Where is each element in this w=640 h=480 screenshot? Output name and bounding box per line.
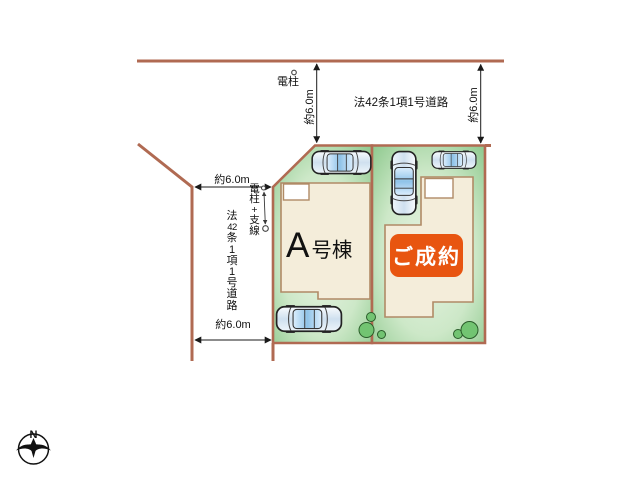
car-lot-a-top	[312, 150, 371, 175]
car-lot-b-vertical	[390, 152, 417, 215]
guy-wire-line	[264, 192, 265, 224]
compass-bird-icon	[16, 444, 51, 459]
dim-label-road-width-right: 約6.0m	[465, 87, 481, 122]
lot-b-sold-badge: ご成約	[390, 234, 463, 277]
site-plan: N 法42条1項1号道路 電柱 約6.0m 約6.0m 約6.0m 約6.0m …	[0, 0, 640, 480]
tree-small-lot-b-left	[378, 331, 386, 339]
tree-small-lot-a	[367, 313, 376, 322]
lot-a-name-suffix: 号棟	[311, 241, 352, 262]
building-b-porch	[425, 179, 453, 199]
road-label-top: 法42条1項1号道路	[354, 94, 449, 110]
road-label-left: 法 42 条 1 項 1 号 道 路	[224, 211, 240, 312]
tree-big-lot-b	[461, 322, 478, 339]
left-road-line	[138, 144, 192, 361]
utility-pole-label: 電柱	[277, 73, 299, 89]
lot-a-name: A 号棟	[286, 228, 352, 263]
pole-guy-label: 電 柱 + 支 線	[247, 184, 262, 236]
dim-label-road-width-left: 約6.0m	[301, 89, 317, 124]
compass: N	[16, 429, 51, 464]
tree-big-lot-a	[359, 323, 374, 338]
dim-label-left-road-bottom: 約6.0m	[215, 316, 250, 332]
utility-pole-circle-side	[262, 186, 266, 190]
building-a-porch	[284, 184, 310, 200]
dim-label-left-road-top: 約6.0m	[214, 171, 249, 187]
guy-wire-anchor-circle	[263, 226, 269, 232]
car-lot-b-top-right	[432, 151, 476, 170]
car-lot-a-bottom	[277, 305, 342, 333]
lot-a-name-main: A	[286, 228, 309, 263]
